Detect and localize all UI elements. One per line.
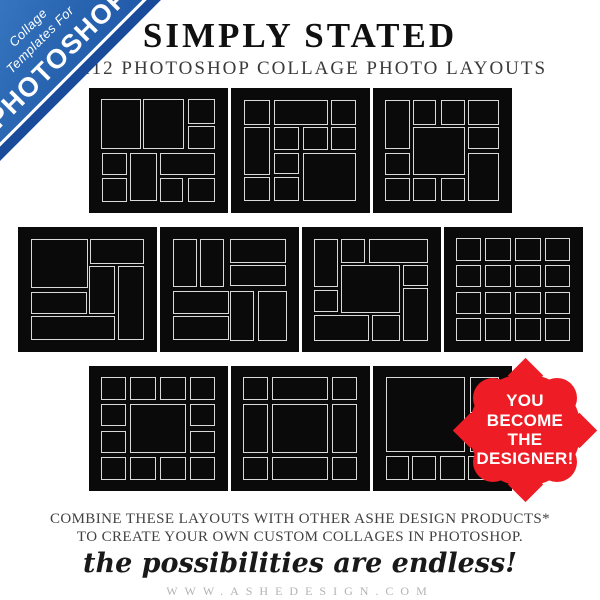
collage-cell <box>188 99 216 124</box>
collage-cell <box>173 239 197 287</box>
footer-line-2: TO CREATE YOUR OWN CUSTOM COLLAGES IN PH… <box>0 529 600 547</box>
collage-cell <box>412 456 436 480</box>
footer-line-1: COMBINE THESE LAYOUTS WITH OTHER ASHE DE… <box>0 511 600 529</box>
collage-cell <box>515 292 540 315</box>
badge-text-line: BECOME <box>487 411 563 430</box>
collage-cell <box>456 265 481 288</box>
collage-cell <box>130 377 155 400</box>
collage-cell <box>314 290 338 313</box>
collage-cell <box>200 239 224 287</box>
collage-cell <box>485 292 510 315</box>
collage-cell <box>332 457 357 480</box>
collage-cell <box>188 126 216 150</box>
collage-cell <box>314 239 338 287</box>
collage-cell <box>385 100 410 149</box>
collage-cell <box>160 153 215 176</box>
collage-cell <box>118 266 144 340</box>
collage-inner <box>385 99 500 202</box>
collage-cell <box>468 100 499 125</box>
collage-cell <box>31 316 115 340</box>
collage-cell <box>515 238 540 261</box>
collage-inner <box>101 99 216 202</box>
collage-row <box>0 88 600 213</box>
footer: COMBINE THESE LAYOUTS WITH OTHER ASHE DE… <box>0 511 600 599</box>
badge-text-line: DESIGNER! <box>476 449 573 468</box>
collage-cell <box>272 457 327 480</box>
collage-cell <box>485 238 510 261</box>
collage-thumbnail-layout-8 <box>89 366 228 491</box>
tagline: the possibilities are endless! <box>0 547 600 580</box>
collage-thumbnail-layout-9 <box>231 366 370 491</box>
collage-cell <box>403 265 428 287</box>
collage-cell <box>369 239 429 263</box>
collage-cell <box>485 265 510 288</box>
collage-cell <box>101 431 126 454</box>
collage-thumbnail-layout-1 <box>89 88 228 213</box>
collage-cell <box>31 292 87 315</box>
collage-cell <box>545 318 570 341</box>
collage-cell <box>515 318 540 341</box>
collage-thumbnail-layout-7 <box>444 227 583 352</box>
collage-cell <box>243 377 268 400</box>
collage-cell <box>303 127 327 151</box>
collage-cell <box>230 239 286 263</box>
collage-cell <box>130 404 185 453</box>
collage-cell <box>314 315 369 341</box>
collage-thumbnail-layout-2 <box>231 88 370 213</box>
collage-inner <box>243 99 358 202</box>
collage-cell <box>341 265 400 313</box>
collage-cell <box>190 457 215 480</box>
collage-cell <box>413 100 436 125</box>
collage-cell <box>274 153 299 175</box>
collage-cell <box>243 457 268 480</box>
collage-cell <box>385 153 410 176</box>
collage-cell <box>456 318 481 341</box>
collage-inner <box>101 377 216 480</box>
collage-cell <box>332 377 357 400</box>
collage-cell <box>272 404 327 453</box>
badge-text: YOU BECOME THE DESIGNER! <box>455 360 595 500</box>
product-image-canvas: Collage Templates For PHOTOSHOP SIMPLY S… <box>0 0 600 600</box>
collage-cell <box>545 238 570 261</box>
collage-cell <box>101 457 126 480</box>
collage-cell <box>190 377 215 400</box>
collage-cell <box>468 127 499 150</box>
collage-thumbnail-layout-6 <box>302 227 441 352</box>
collage-cell <box>244 100 270 125</box>
collage-cell <box>331 100 356 125</box>
collage-cell <box>102 153 127 176</box>
collage-cell <box>456 238 481 261</box>
badge-text-line: YOU <box>506 391 544 410</box>
collage-cell <box>101 404 126 427</box>
designer-badge: YOU BECOME THE DESIGNER! <box>455 360 595 500</box>
collage-cell <box>441 178 465 201</box>
collage-cell <box>372 315 400 341</box>
collage-cell <box>332 404 357 453</box>
collage-cell <box>102 178 127 202</box>
collage-cell <box>274 177 299 201</box>
collage-cell <box>331 127 356 151</box>
collage-cell <box>190 431 215 454</box>
collage-thumbnail-layout-5 <box>160 227 299 352</box>
collage-cell <box>160 178 183 202</box>
collage-cell <box>413 127 465 175</box>
collage-cell <box>441 100 465 125</box>
collage-cell <box>258 291 287 341</box>
collage-inner <box>30 238 145 341</box>
collage-cell <box>130 457 155 480</box>
collage-cell <box>274 127 299 151</box>
collage-cell <box>303 153 356 201</box>
collage-cell <box>130 153 156 201</box>
collage-cell <box>413 178 436 201</box>
collage-cell <box>243 404 268 453</box>
collage-cell <box>160 457 185 480</box>
badge-text-line: THE <box>508 430 543 449</box>
collage-cell <box>386 377 465 452</box>
collage-cell <box>101 99 141 149</box>
collage-cell <box>230 291 254 341</box>
collage-thumbnail-layout-4 <box>18 227 157 352</box>
collage-inner <box>456 238 571 341</box>
collage-cell <box>230 265 286 287</box>
collage-row <box>0 227 600 352</box>
collage-cell <box>403 288 428 341</box>
collage-cell <box>188 178 216 202</box>
collage-cell <box>272 377 327 400</box>
collage-cell <box>515 265 540 288</box>
collage-cell <box>485 318 510 341</box>
collage-thumbnail-layout-3 <box>373 88 512 213</box>
collage-cell <box>456 292 481 315</box>
collage-cell <box>173 316 229 340</box>
collage-cell <box>468 153 499 201</box>
collage-inner <box>172 238 287 341</box>
collage-cell <box>173 291 229 315</box>
collage-cell <box>190 404 215 427</box>
collage-inner <box>243 377 358 480</box>
collage-cell <box>385 178 410 201</box>
collage-cell <box>386 456 409 480</box>
collage-cell <box>31 239 89 288</box>
collage-cell <box>90 239 144 264</box>
collage-cell <box>244 127 270 175</box>
collage-cell <box>244 177 270 201</box>
website-url: WWW.ASHEDESIGN.COM <box>0 583 600 599</box>
collage-cell <box>101 377 126 400</box>
collage-cell <box>341 239 365 263</box>
collage-cell <box>160 377 185 400</box>
collage-inner <box>314 238 429 341</box>
collage-cell <box>545 265 570 288</box>
collage-cell <box>274 100 328 125</box>
collage-cell <box>89 266 114 314</box>
collage-cell <box>545 292 570 315</box>
collage-cell <box>143 99 184 149</box>
